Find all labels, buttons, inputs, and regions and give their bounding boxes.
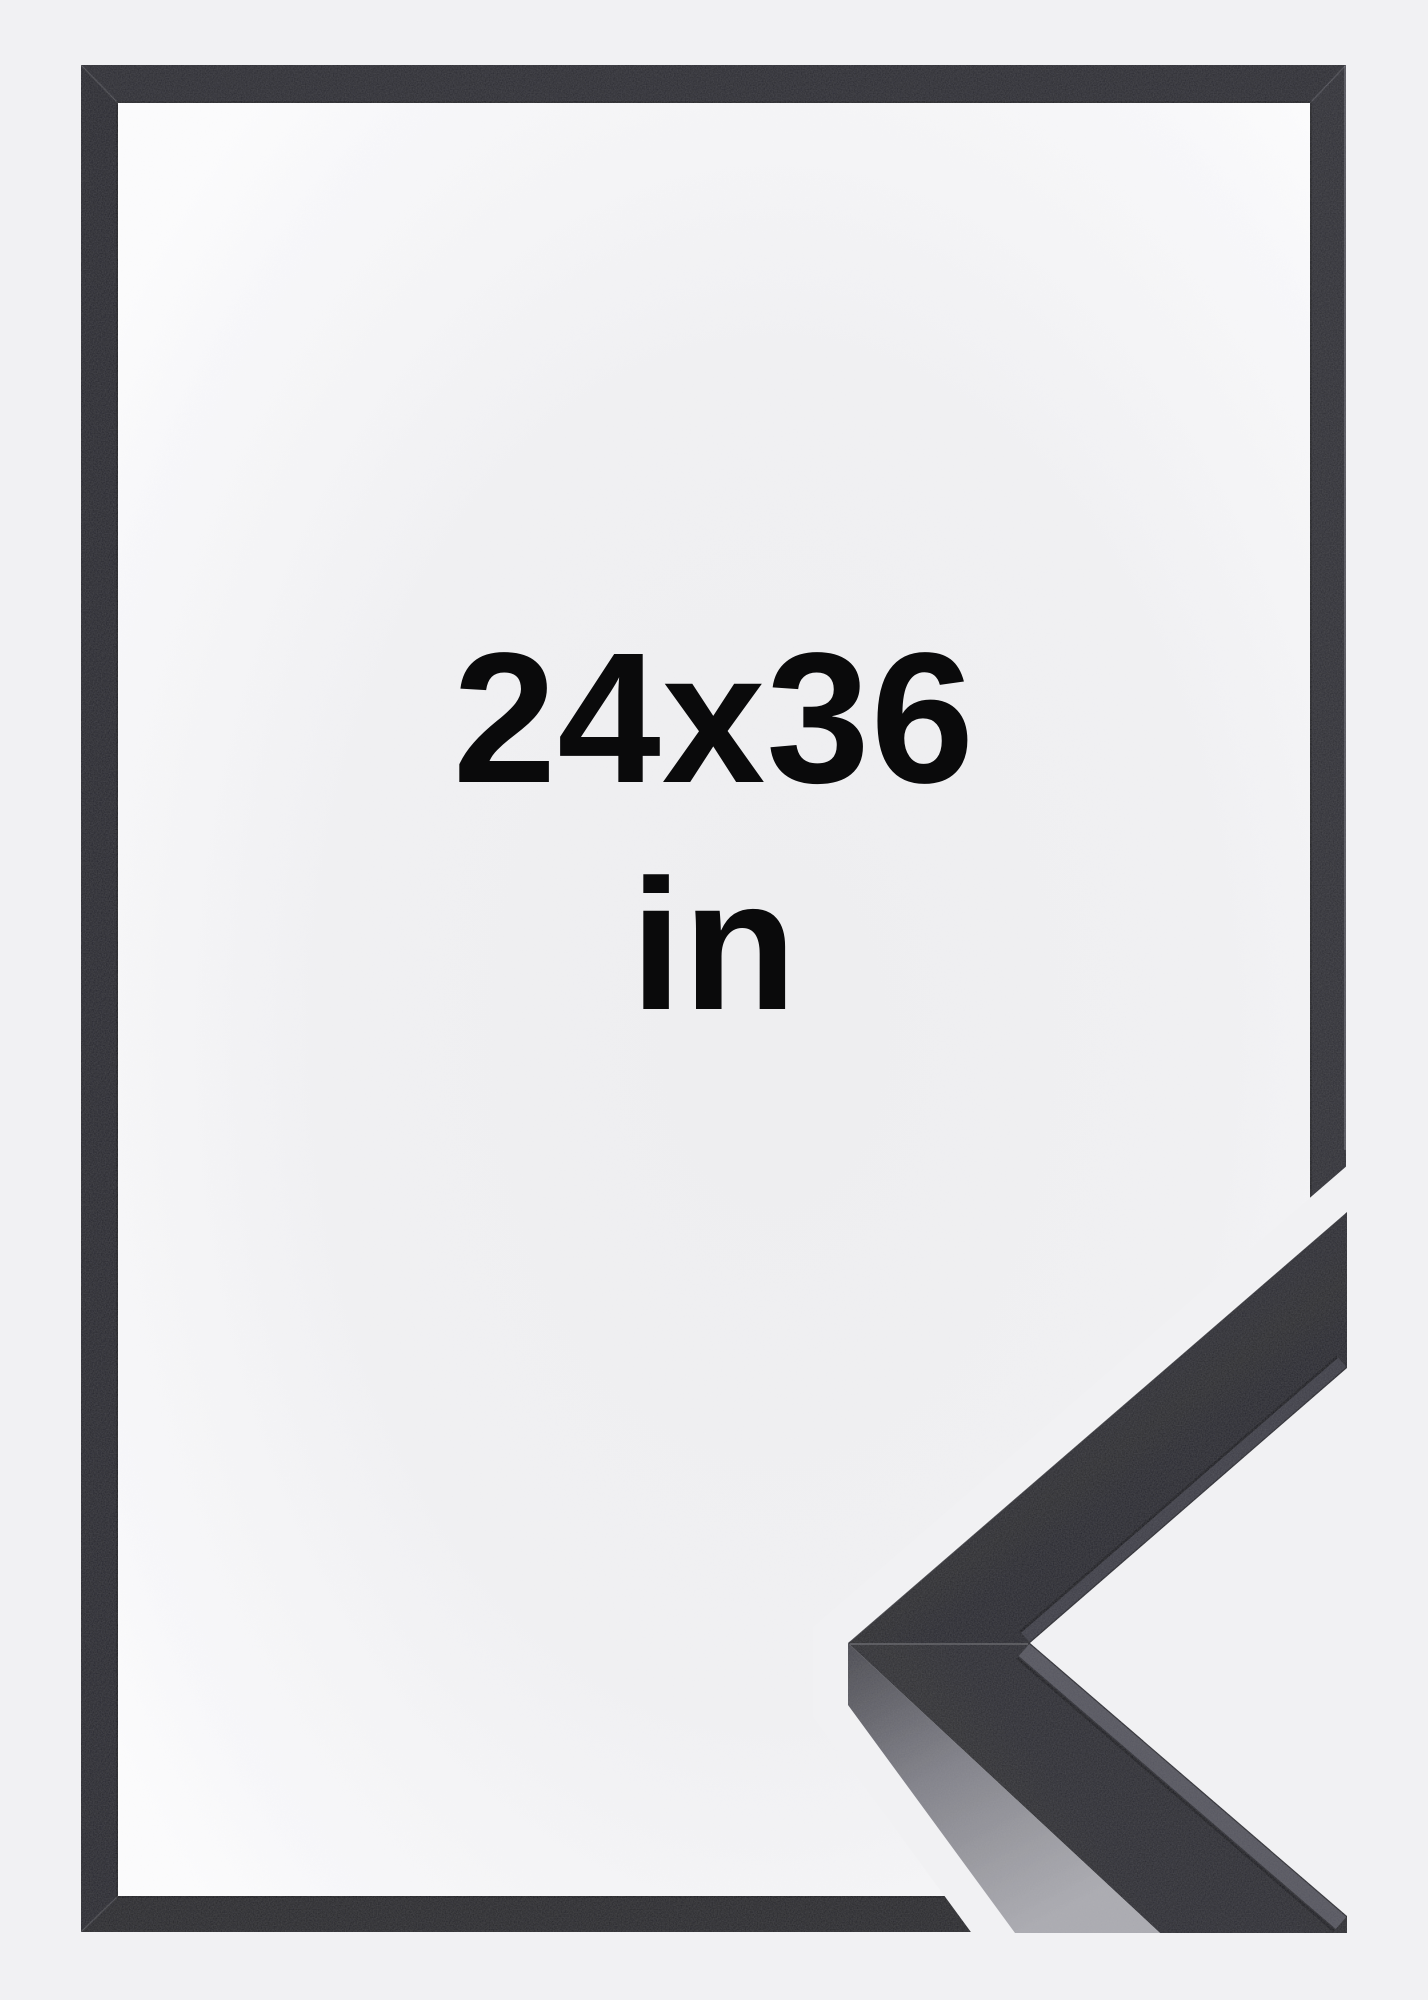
frame-border-top: [81, 65, 1346, 103]
product-image-canvas: 24x36 in: [0, 0, 1428, 2000]
size-label: 24x36: [0, 626, 1428, 812]
unit-label: in: [0, 853, 1428, 1039]
